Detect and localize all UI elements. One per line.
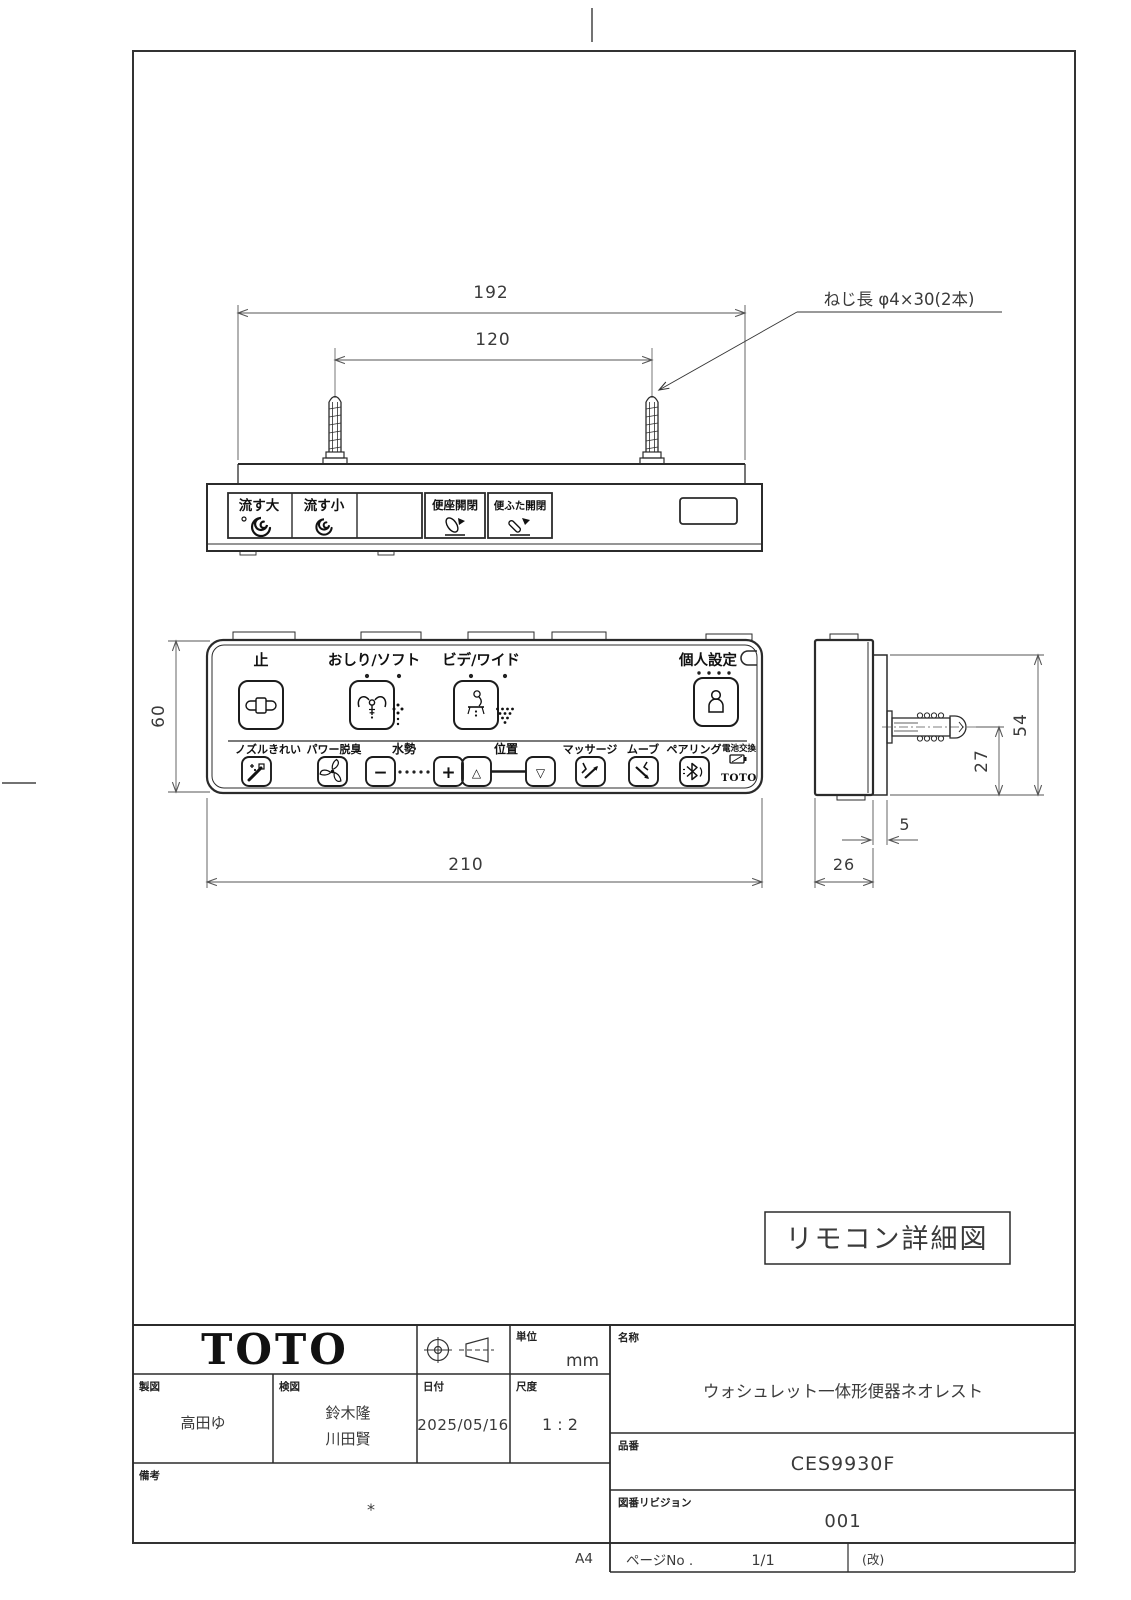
toto-logo-small: TOTO bbox=[721, 772, 757, 784]
caption-box: リモコン詳細図 bbox=[765, 1212, 1010, 1264]
nozzle-clean-label: ノズルきれい bbox=[235, 742, 301, 756]
name-label: 名称 bbox=[618, 1331, 639, 1344]
lid-open-icon bbox=[508, 518, 530, 535]
drafter-label: 製図 bbox=[138, 1380, 160, 1393]
down-triangle-glyph: ▽ bbox=[536, 766, 546, 780]
side-body bbox=[815, 640, 873, 795]
small-flush-dot bbox=[242, 517, 246, 521]
flush-small-label[interactable]: 流す小 bbox=[304, 497, 345, 514]
move-label: ムーブ bbox=[627, 742, 659, 756]
checker-value-2: 川田賢 bbox=[325, 1430, 370, 1448]
unit-value: mm bbox=[566, 1351, 599, 1371]
flush-large-swirl-icon bbox=[252, 518, 270, 536]
dim-60: 60 bbox=[149, 704, 169, 728]
scale-label: 尺度 bbox=[516, 1380, 537, 1393]
scale-value: 1 : 2 bbox=[542, 1415, 578, 1434]
toto-logo-title: TOTO bbox=[201, 1325, 349, 1374]
screw-anchor-left bbox=[323, 348, 347, 464]
part-no-label: 品番 bbox=[618, 1439, 639, 1452]
flush-small-swirl-icon bbox=[316, 519, 331, 534]
remarks-label: 備考 bbox=[139, 1469, 160, 1482]
page-no-value: 1/1 bbox=[751, 1553, 774, 1569]
unit-label: 単位 bbox=[516, 1330, 537, 1343]
minus-glyph: − bbox=[373, 763, 387, 783]
side-screw-anchor bbox=[882, 711, 976, 743]
pairing-label: ペアリング bbox=[667, 742, 722, 756]
page-rev-mark: (改) bbox=[862, 1552, 884, 1567]
bidet-wide-label: ビデ/ワイド bbox=[442, 651, 520, 669]
power-deodorize-label: パワー脱臭 bbox=[307, 742, 362, 756]
paper-size: A4 bbox=[575, 1551, 593, 1567]
checker-value-1: 鈴木隆 bbox=[325, 1404, 370, 1422]
position-label: 位置 bbox=[494, 741, 518, 756]
transmitter-window bbox=[680, 498, 737, 524]
screw-note: ねじ長 φ4×30(2本) bbox=[824, 290, 975, 309]
dim-54: 54 bbox=[1011, 713, 1031, 737]
drawing-caption: リモコン詳細図 bbox=[786, 1224, 989, 1255]
screw-anchor-right bbox=[640, 348, 664, 464]
drafter-value: 高田ゆ bbox=[180, 1414, 225, 1432]
massage-label: マッサージ bbox=[563, 743, 618, 756]
part-no-value: CES9930F bbox=[791, 1453, 896, 1475]
dim-27: 27 bbox=[972, 749, 992, 773]
stop-label: 止 bbox=[253, 651, 268, 669]
side-view: 54 27 5 26 bbox=[815, 634, 1044, 888]
cad-drawing: 192 120 bbox=[0, 0, 1131, 1600]
battery-replace-label: 電池交換 bbox=[722, 743, 757, 754]
personal-setting-label: 個人設定 bbox=[678, 651, 737, 669]
water-pressure-label: 水勢 bbox=[392, 741, 416, 756]
dim-5: 5 bbox=[899, 815, 910, 834]
top-view: 192 120 bbox=[207, 283, 1002, 555]
revision-label: 図番リビジョン bbox=[618, 1496, 692, 1509]
flush-large-label[interactable]: 流す大 bbox=[239, 497, 280, 514]
checker-label: 検図 bbox=[279, 1380, 300, 1393]
page-no-label: ページNo . bbox=[626, 1553, 693, 1569]
dim-192: 192 bbox=[473, 283, 508, 303]
remarks-value: * bbox=[367, 1500, 375, 1519]
date-value: 2025/05/16 bbox=[417, 1416, 508, 1434]
lid-open-label: 便ふた開閉 bbox=[494, 499, 547, 512]
front-view: 止 おしり/ソフト ビデ/ワイド 個人設定 bbox=[149, 632, 762, 888]
dim-26: 26 bbox=[833, 855, 855, 874]
screw-note-leader bbox=[659, 312, 797, 390]
mounting-plate bbox=[873, 655, 887, 795]
seat-open-icon bbox=[444, 516, 465, 535]
plus-glyph: + bbox=[441, 763, 455, 783]
projection-symbol-icon bbox=[424, 1337, 494, 1363]
title-block: TOTO 単位 mm 製図 高田ゆ 検図 鈴木隆 川田賢 日付 2025/05/… bbox=[133, 1325, 1075, 1572]
date-label: 日付 bbox=[423, 1380, 444, 1393]
seat-open-label: 便座開閉 bbox=[432, 498, 478, 512]
name-value: ウォシュレット一体形便器ネオレスト bbox=[703, 1382, 983, 1401]
drawing-border bbox=[133, 51, 1075, 1543]
up-triangle-glyph: △ bbox=[472, 766, 482, 780]
dim-120: 120 bbox=[475, 330, 510, 350]
dim-210: 210 bbox=[448, 855, 483, 875]
oshiri-soft-label: おしり/ソフト bbox=[328, 652, 420, 669]
drawing-sheet: 192 120 bbox=[0, 0, 1131, 1600]
revision-value: 001 bbox=[824, 1511, 861, 1532]
